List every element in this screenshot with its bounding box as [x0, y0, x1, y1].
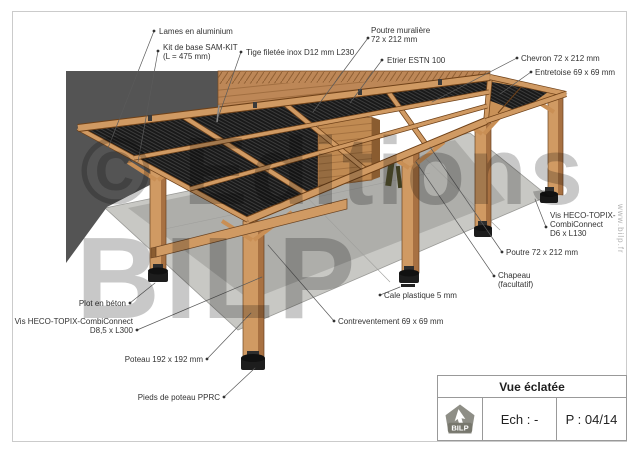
svg-text:Vis HECO-TOPIX-CombiConnect: Vis HECO-TOPIX-CombiConnect	[15, 317, 134, 326]
svg-text:D6 x L130: D6 x L130	[550, 229, 587, 238]
poteau-right-back	[530, 96, 563, 195]
bilp-logo: BILP	[438, 398, 483, 440]
svg-text:Entretoise 69 x 69 mm: Entretoise 69 x 69 mm	[535, 68, 615, 77]
drawing-title: Vue éclatée	[438, 376, 626, 398]
page-number-cell: P : 04/14	[557, 398, 626, 440]
svg-text:(facultatif): (facultatif)	[498, 280, 533, 289]
svg-text:Tige filetée inox D12 mm L230: Tige filetée inox D12 mm L230	[246, 48, 355, 57]
website-url: www.bilp.fr	[616, 204, 625, 254]
svg-text:Chevron 72 x 212 mm: Chevron 72 x 212 mm	[521, 54, 600, 63]
svg-text:Kit de base SAM-KIT: Kit de base SAM-KIT	[163, 43, 238, 52]
callout-pieds-de-poteau: Pieds de poteau PPRC	[138, 368, 255, 402]
svg-text:Pieds de poteau PPRC: Pieds de poteau PPRC	[138, 393, 220, 402]
drawing-page: Lames en aluminium Kit de base SAM-KIT (…	[0, 0, 640, 452]
callout-cale-plastique: Cale plastique 5 mm	[379, 287, 458, 300]
scale-cell: Ech : -	[483, 398, 557, 440]
svg-text:Poutre muralière: Poutre muralière	[371, 26, 431, 35]
title-block: Vue éclatée BILP Ech : - P : 04/14	[437, 375, 627, 441]
svg-text:Contreventement 69 x 69 mm: Contreventement 69 x 69 mm	[338, 317, 444, 326]
svg-text:Lames en aluminium: Lames en aluminium	[159, 27, 233, 36]
svg-text:CombiConnect: CombiConnect	[550, 220, 604, 229]
callout-vis-d6: Vis HECO-TOPIX- CombiConnect D6 x L130	[535, 199, 616, 238]
svg-text:Chapeau: Chapeau	[498, 271, 530, 280]
cale-plastique	[401, 284, 415, 287]
svg-text:Vis HECO-TOPIX-: Vis HECO-TOPIX-	[550, 211, 616, 220]
svg-text:Plot en béton: Plot en béton	[79, 299, 126, 308]
svg-text:72 x 212 mm: 72 x 212 mm	[371, 35, 418, 44]
svg-text:Poutre 72 x 212 mm: Poutre 72 x 212 mm	[506, 248, 578, 257]
svg-text:Poteau 192 x 192 mm: Poteau 192 x 192 mm	[125, 355, 204, 364]
svg-text:BILP: BILP	[451, 423, 468, 432]
svg-text:Cale plastique 5 mm: Cale plastique 5 mm	[384, 291, 457, 300]
svg-text:Etrier ESTN 100: Etrier ESTN 100	[387, 56, 446, 65]
svg-text:(L = 475 mm): (L = 475 mm)	[163, 52, 211, 61]
svg-text:D8,5 x L300: D8,5 x L300	[90, 326, 134, 335]
bilp-logo-icon: BILP	[443, 403, 477, 435]
callout-plot-en-beton: Plot en béton	[79, 283, 155, 308]
